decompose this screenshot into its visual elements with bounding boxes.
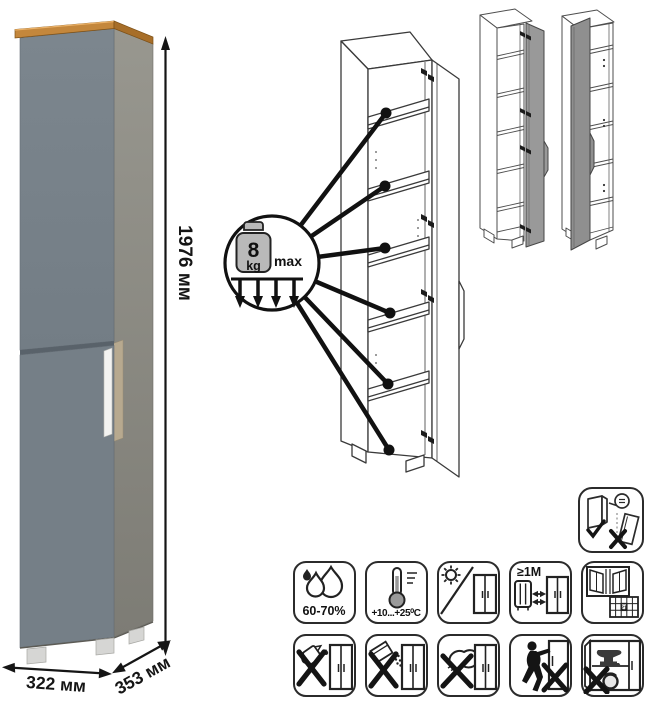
heat-source-distance-icon: ≥1М (509, 561, 572, 624)
cabinet-glyph (474, 575, 496, 613)
small-drop (303, 569, 311, 581)
exploded-cabinet-diagram: 8 kg max (225, 32, 464, 477)
distance-label: ≥1М (517, 565, 541, 579)
load-unit: kg (246, 259, 261, 273)
width-label: 322 мм (25, 672, 86, 696)
ventilation-calendar-icon: 21 (581, 561, 644, 624)
door-handle (104, 348, 112, 437)
variant-a-door (526, 23, 548, 247)
calendar-day: 21 (621, 605, 627, 611)
no-heavy-objects-icon (581, 634, 644, 697)
height-label: 1976 мм (174, 225, 195, 301)
temperature-label: +10...+25⁰C (371, 608, 420, 619)
product-photo (15, 21, 153, 664)
variant-door-left (562, 10, 614, 250)
no-scrubbing-icon (437, 634, 500, 697)
humidity-icon: 60-70% (293, 561, 356, 624)
cabinet-door-upper (20, 29, 114, 351)
carcass-left-wall (341, 41, 368, 452)
cabinet-glyph (330, 645, 352, 689)
radiator-icon (515, 581, 531, 611)
no-abrasive-powder-icon (365, 634, 428, 697)
door-orientation-variants (480, 9, 614, 250)
no-liquids-icon (293, 634, 356, 697)
variant-door-right (480, 9, 548, 248)
double-arrow-icon (533, 592, 545, 605)
secure-to-wall-icon (578, 487, 644, 553)
depth-label: 353 мм (111, 652, 173, 699)
cabinet-glyph (402, 645, 424, 689)
thermometer-bulb (390, 593, 405, 608)
cabinet-glyph (547, 577, 568, 613)
width-dimension: 322 мм (2, 663, 112, 696)
sun-icon (442, 566, 461, 585)
furniture-spec-sheet: 1976 мм 322 мм 353 мм (0, 0, 648, 700)
kettlebell-icon (604, 674, 618, 689)
open-window-icon (587, 567, 629, 596)
cabinet-side-panel (114, 29, 153, 638)
cabinet-glyph (475, 645, 496, 689)
no-direct-sunlight-icon (437, 561, 500, 624)
load-qualifier: max (274, 253, 302, 269)
temperature-icon: +10...+25⁰C (365, 561, 428, 624)
shelf-load-badge: 8 kg max (225, 216, 319, 310)
humidity-label: 60-70% (302, 604, 345, 618)
cabinet-door-lower (20, 346, 114, 648)
no-dragging-icon (509, 634, 572, 697)
height-dimension: 1976 мм (161, 36, 195, 656)
open-door (432, 60, 464, 477)
